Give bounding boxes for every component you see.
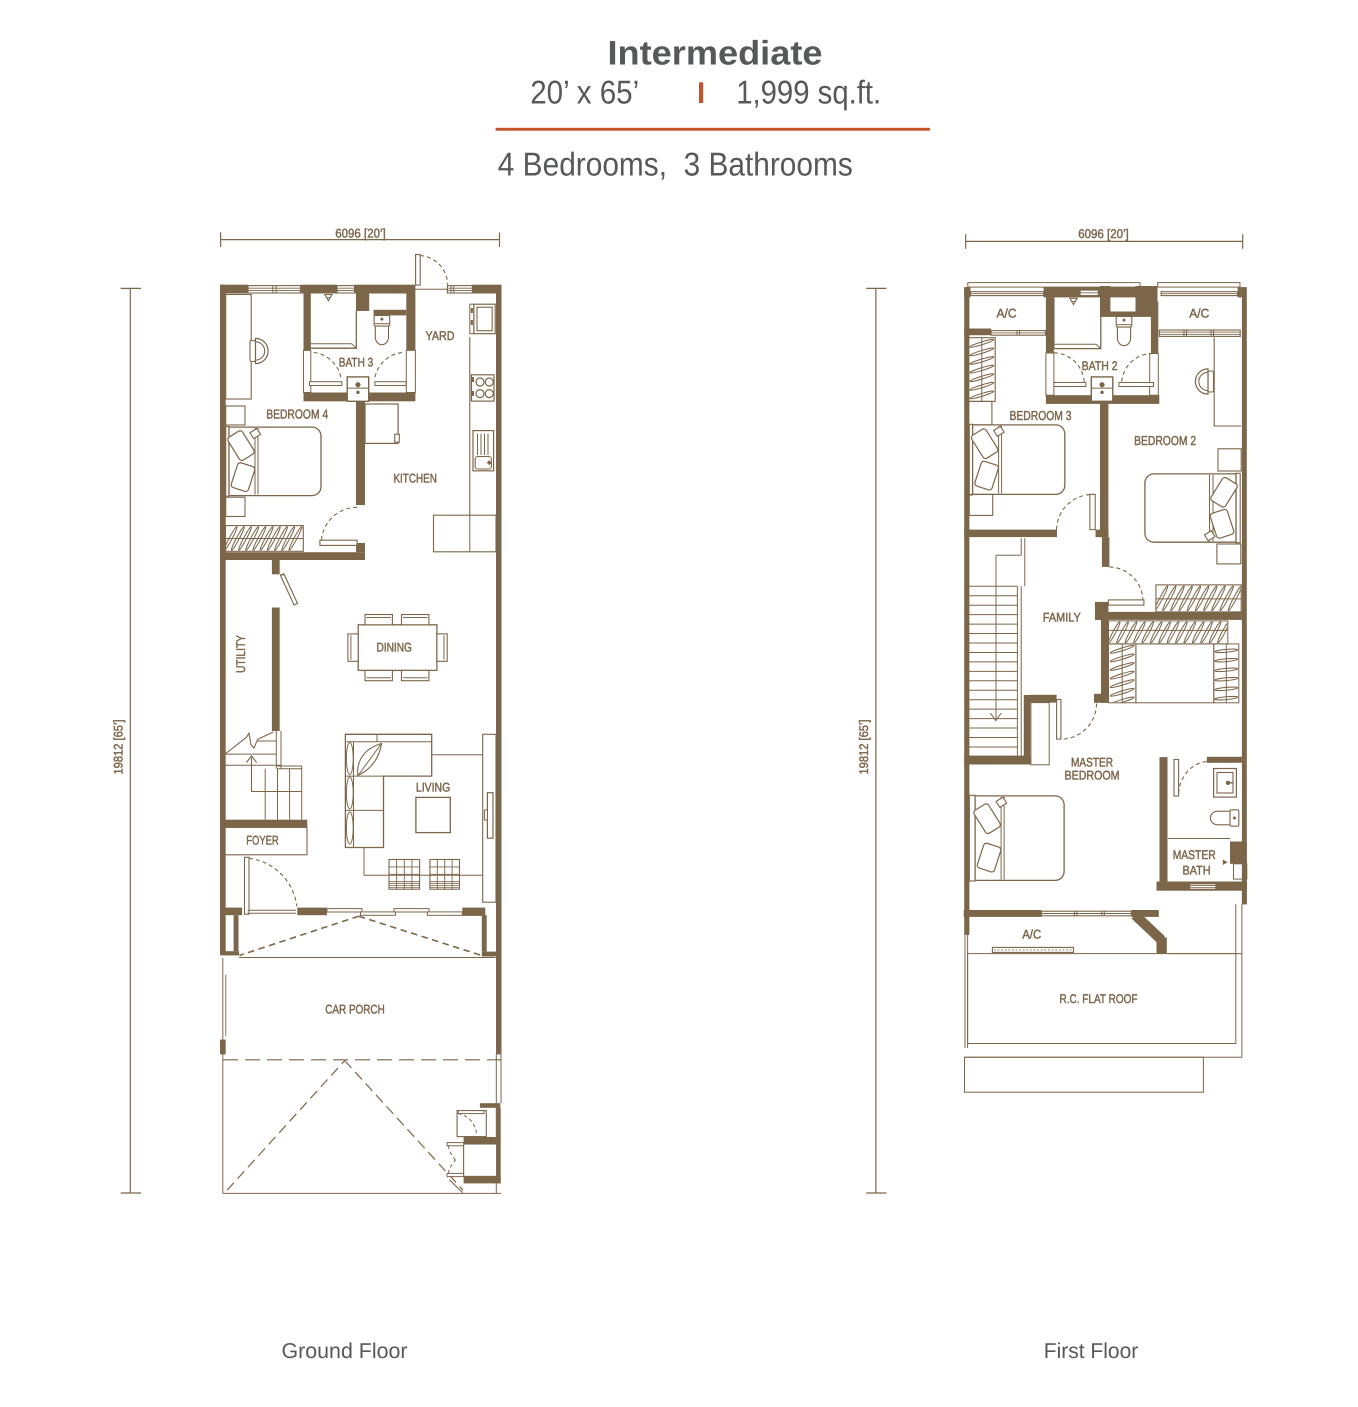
svg-text:1,999 sq.ft.: 1,999 sq.ft. bbox=[736, 74, 881, 111]
svg-text:DINING: DINING bbox=[376, 641, 412, 655]
svg-text:LIVING: LIVING bbox=[416, 781, 451, 795]
svg-text:BEDROOM 2: BEDROOM 2 bbox=[1134, 433, 1196, 448]
svg-text:MASTER: MASTER bbox=[1173, 848, 1216, 862]
svg-text:6096 [20’]: 6096 [20’] bbox=[1078, 227, 1129, 241]
svg-text:FOYER: FOYER bbox=[246, 834, 279, 848]
svg-text:CAR PORCH: CAR PORCH bbox=[325, 1002, 385, 1016]
svg-text:BEDROOM 4: BEDROOM 4 bbox=[266, 407, 328, 422]
svg-text:BEDROOM 3: BEDROOM 3 bbox=[1010, 408, 1072, 423]
svg-text:UTILITY: UTILITY bbox=[234, 634, 248, 673]
svg-text:BEDROOM: BEDROOM bbox=[1065, 768, 1120, 782]
svg-text:BATH 2: BATH 2 bbox=[1082, 359, 1118, 373]
svg-text:BATH 3: BATH 3 bbox=[339, 356, 374, 370]
svg-text:Intermediate: Intermediate bbox=[608, 35, 823, 73]
svg-text:20’ x 65’: 20’ x 65’ bbox=[530, 74, 639, 111]
svg-text:MASTER: MASTER bbox=[1071, 755, 1113, 769]
svg-text:YARD: YARD bbox=[426, 329, 455, 343]
svg-text:A/C: A/C bbox=[997, 306, 1017, 320]
svg-text:BATH: BATH bbox=[1183, 864, 1211, 878]
svg-text:A/C: A/C bbox=[1022, 927, 1041, 941]
svg-text:19812 [65’]: 19812 [65’] bbox=[857, 720, 871, 775]
svg-text:Ground Floor: Ground Floor bbox=[282, 1339, 408, 1363]
svg-text:First Floor: First Floor bbox=[1044, 1339, 1139, 1363]
svg-text:19812 [65’]: 19812 [65’] bbox=[112, 720, 126, 775]
svg-text:4 Bedrooms, 3 Bathrooms: 4 Bedrooms, 3 Bathrooms bbox=[498, 146, 853, 183]
svg-text:R.C. FLAT ROOF: R.C. FLAT ROOF bbox=[1060, 992, 1138, 1006]
svg-text:A/C: A/C bbox=[1189, 306, 1209, 320]
svg-text:6096 [20’]: 6096 [20’] bbox=[335, 226, 386, 240]
svg-text:FAMILY: FAMILY bbox=[1043, 610, 1082, 624]
svg-text:KITCHEN: KITCHEN bbox=[393, 472, 437, 486]
